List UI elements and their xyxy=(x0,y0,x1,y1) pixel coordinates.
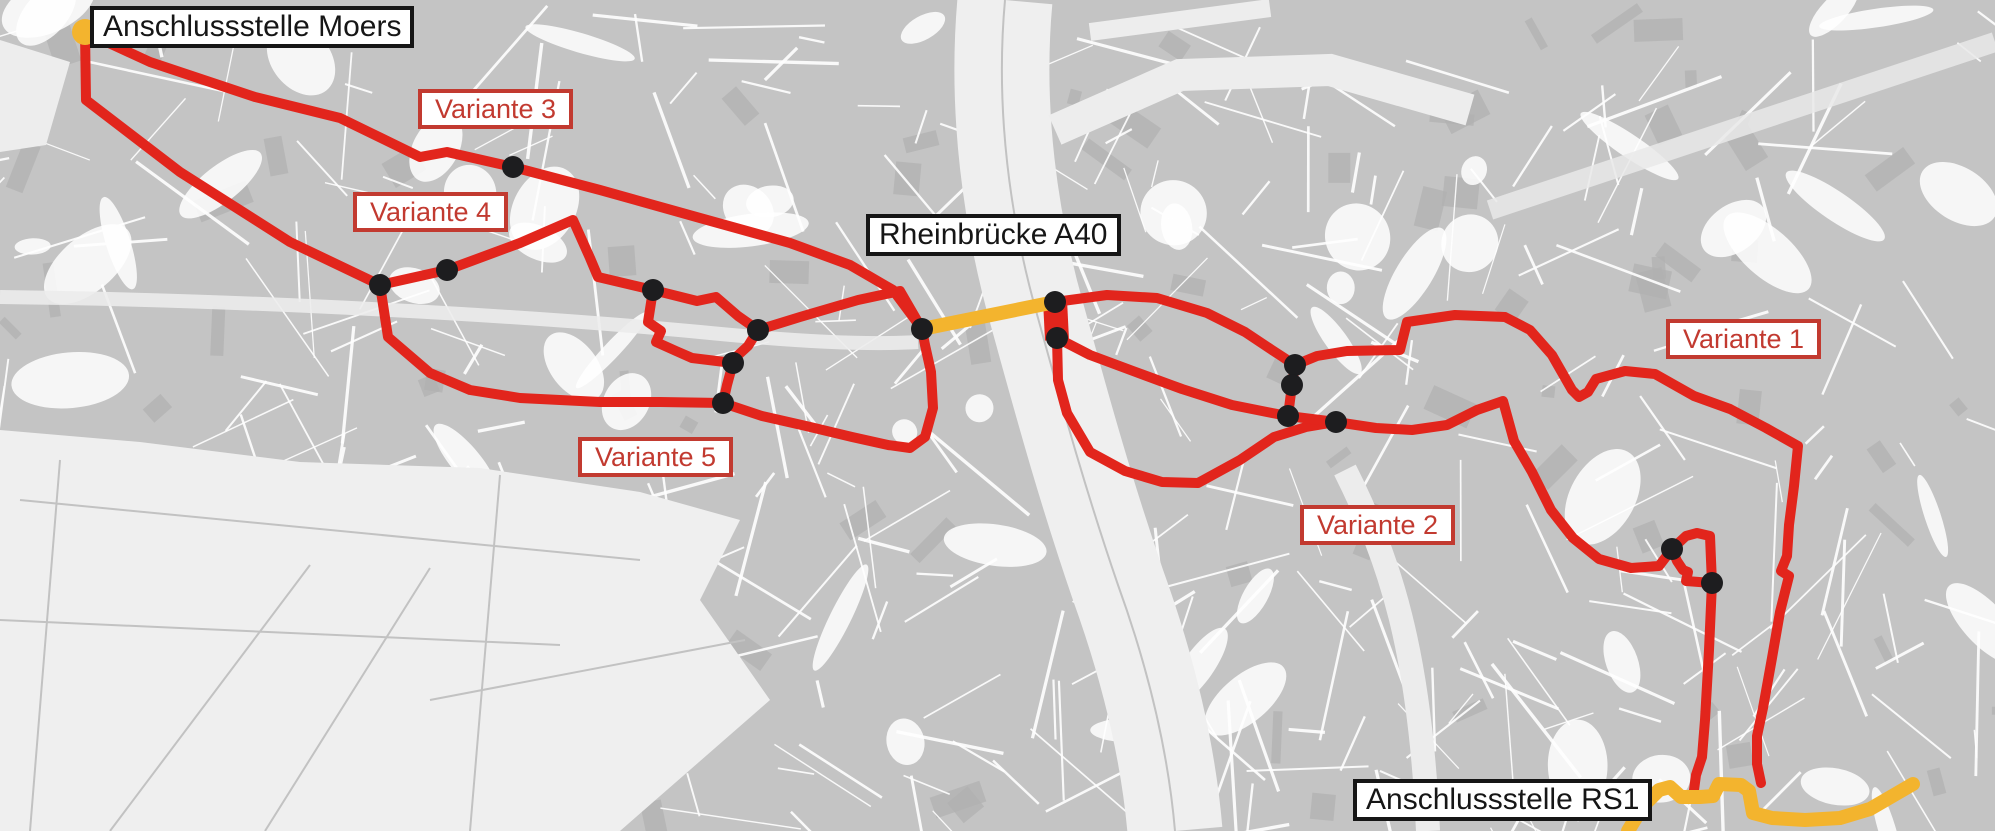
junction-dot xyxy=(911,318,933,340)
street-line xyxy=(1813,40,1814,132)
base-map xyxy=(0,0,1995,831)
label-anschlussstelle-rs1: Anschlussstelle RS1 xyxy=(1353,779,1652,821)
city-block xyxy=(1652,256,1667,279)
city-block xyxy=(893,161,921,196)
label-variante-2: Variante 2 xyxy=(1300,505,1455,545)
junction-dot xyxy=(1661,538,1683,560)
label-variante-4: Variante 4 xyxy=(353,192,508,232)
city-block xyxy=(1634,18,1684,42)
junction-dot xyxy=(722,352,744,374)
street-line xyxy=(858,106,900,107)
junction-dot xyxy=(1277,405,1299,427)
city-block xyxy=(1726,742,1754,769)
junction-dot xyxy=(1325,411,1347,433)
route-variants-map: Anschlussstelle Moers Variante 3 Variant… xyxy=(0,0,1995,831)
label-variante-3: Variante 3 xyxy=(418,89,573,129)
junction-dot xyxy=(436,259,458,281)
junction-dot xyxy=(747,319,769,341)
city-block xyxy=(210,306,225,356)
junction-dot xyxy=(712,392,734,414)
junction-dot xyxy=(642,279,664,301)
city-block xyxy=(769,260,809,284)
junction-dot xyxy=(1281,374,1303,396)
junction-dot xyxy=(369,274,391,296)
label-variante-1: Variante 1 xyxy=(1666,319,1821,359)
label-variante-5: Variante 5 xyxy=(578,437,733,477)
junction-dot xyxy=(1044,291,1066,313)
junction-dot xyxy=(502,156,524,178)
city-block xyxy=(1328,153,1350,183)
junction-dot xyxy=(1701,572,1723,594)
label-rheinbruecke-a40: Rheinbrücke A40 xyxy=(866,214,1121,256)
label-anschlussstelle-moers: Anschlussstelle Moers xyxy=(90,6,414,48)
city-block xyxy=(608,245,637,277)
junction-dot xyxy=(1046,327,1068,349)
city-block xyxy=(1310,793,1336,821)
junction-dot xyxy=(1284,354,1306,376)
